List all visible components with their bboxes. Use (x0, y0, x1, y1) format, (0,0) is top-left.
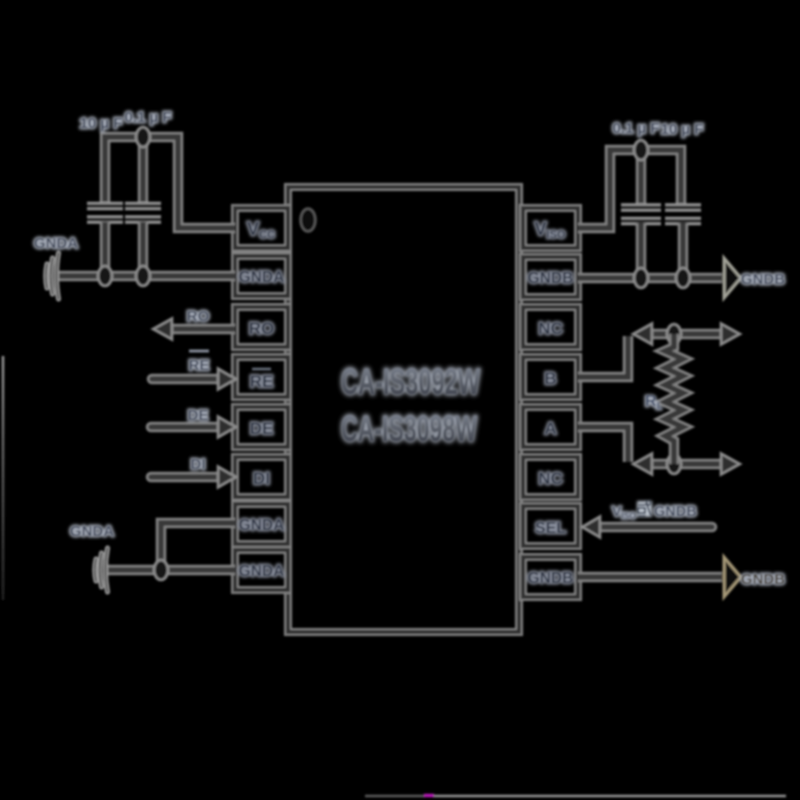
svg-text:GNDA: GNDA (239, 563, 285, 580)
svg-text:GNDB: GNDB (528, 270, 574, 287)
svg-text:RE: RE (250, 372, 274, 391)
svg-text:GNDB: GNDB (741, 571, 785, 588)
svg-text:DE: DE (188, 407, 209, 424)
svg-text:GNDB: GNDB (654, 504, 697, 520)
svg-text:0.1 µ F: 0.1 µ F (613, 120, 660, 137)
svg-text:GNDA: GNDA (70, 523, 114, 540)
svg-text:RE: RE (189, 357, 210, 374)
svg-text:10 µ F: 10 µ F (661, 121, 704, 138)
svg-text:GNDA: GNDA (34, 235, 78, 252)
svg-text:DI: DI (253, 469, 270, 488)
svg-text:0.1 µ F: 0.1 µ F (125, 109, 172, 126)
svg-text:10 µ F: 10 µ F (80, 115, 123, 132)
svg-text:GNDA: GNDA (239, 269, 285, 286)
svg-text:CA-IS3098W: CA-IS3098W (341, 408, 477, 449)
svg-text:DE: DE (250, 419, 274, 438)
svg-text:RO: RO (187, 308, 210, 325)
svg-text:B: B (544, 369, 556, 388)
svg-text:NC: NC (538, 319, 563, 338)
svg-text:GNDA: GNDA (239, 517, 285, 534)
svg-text:GNDB: GNDB (741, 271, 785, 288)
svg-text:NC: NC (538, 469, 563, 488)
svg-text:DI: DI (191, 456, 206, 473)
svg-text:CA-IS3092W: CA-IS3092W (341, 361, 480, 402)
svg-text:GNDB: GNDB (528, 570, 574, 587)
svg-text:SEL: SEL (535, 520, 566, 537)
svg-text:A: A (544, 419, 556, 438)
svg-text:RO: RO (249, 319, 275, 338)
